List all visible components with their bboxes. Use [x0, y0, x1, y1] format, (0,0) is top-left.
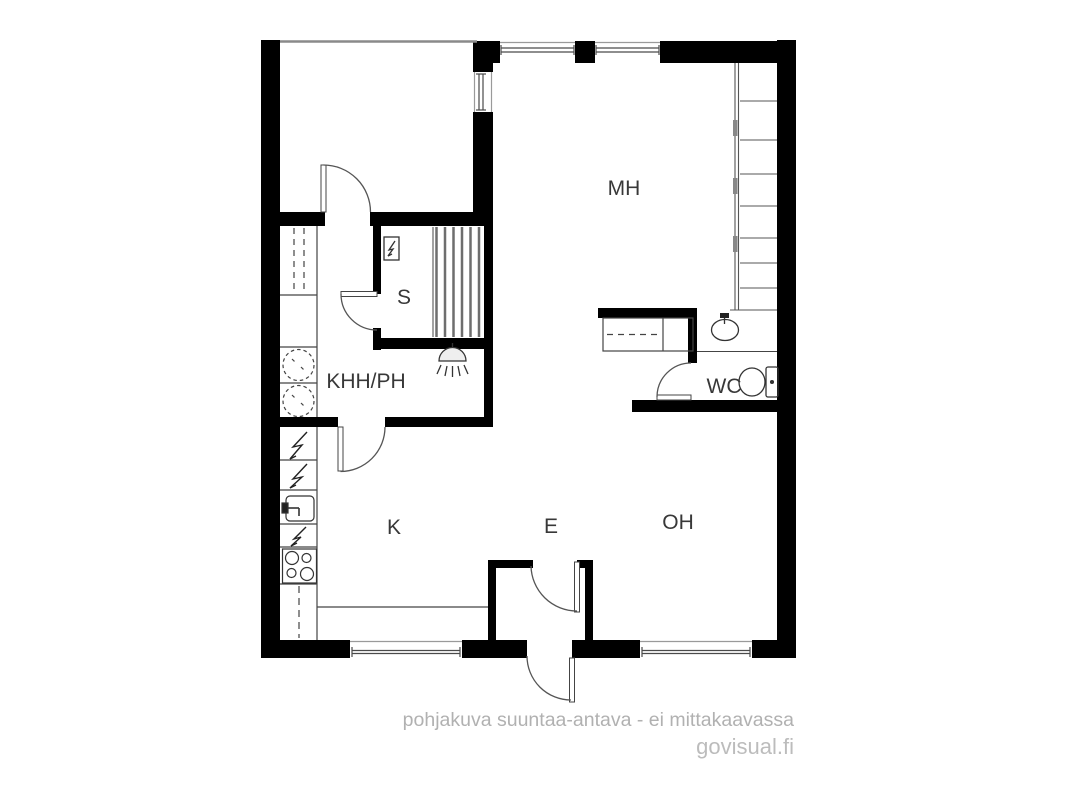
wardrobe-handle [733, 120, 738, 136]
dryer-icon [283, 386, 314, 417]
tall-cabinet [294, 228, 304, 293]
wash-basin-icon [712, 313, 739, 341]
wardrobe-handle [733, 236, 738, 252]
wardrobe-handle [733, 178, 738, 194]
terrace-door [321, 165, 371, 212]
room-label-mh: MH [608, 177, 641, 200]
room-label-wc: WC [707, 375, 742, 398]
door-swing-icon [341, 294, 377, 330]
electrical-appliance-icon [291, 527, 306, 546]
utility-cabinets [280, 226, 317, 417]
room-label-e: E [544, 515, 558, 538]
window-kitchen [350, 642, 462, 658]
disclaimer-text: pohjakuva suuntaa-antava - ei mittakaava… [403, 709, 794, 731]
floor-plan-page: MH S KHH/PH WC K E OH pohjakuva suuntaa-… [0, 0, 1067, 800]
door-swing-icon [527, 656, 571, 700]
floor-plan-drawing: MH S KHH/PH WC K E OH pohjakuva suuntaa-… [0, 0, 1067, 800]
hall-closet [603, 318, 693, 351]
sauna-benches [433, 227, 479, 337]
walls [261, 40, 796, 658]
brand-text: govisual.fi [696, 734, 794, 759]
sauna-door [341, 292, 377, 331]
room-label-s: S [397, 286, 411, 309]
sauna-fittings [384, 227, 479, 337]
room-label-khh-ph: KHH/PH [326, 370, 405, 393]
door-swing-icon [531, 566, 577, 611]
mh-wardrobe [730, 63, 777, 310]
washing-machine-icon [283, 350, 314, 381]
stove-icon [283, 549, 317, 583]
room-label-k: K [387, 516, 401, 539]
window-top-2 [595, 43, 660, 56]
sauna-heater-icon [384, 237, 399, 260]
door-swing-icon [657, 363, 691, 397]
room-labels: MH S KHH/PH WC K E OH [326, 177, 741, 539]
electrical-appliance-icon [290, 432, 307, 459]
kitchen-fittings [280, 427, 488, 640]
electrical-appliance-icon [290, 464, 307, 488]
footer: pohjakuva suuntaa-antava - ei mittakaava… [403, 709, 794, 759]
vestibule-inner-door [531, 562, 580, 612]
wc-door [657, 363, 691, 400]
window-top-1 [500, 43, 575, 56]
toilet-icon [739, 367, 778, 397]
front-door [527, 656, 575, 702]
utility-room-door [338, 427, 385, 472]
door-swing-icon [341, 427, 386, 472]
window-mh-side [475, 72, 492, 112]
door-swing-icon [324, 165, 371, 212]
room-label-oh: OH [662, 511, 694, 534]
kitchen-sink-icon [282, 496, 314, 521]
window-livingroom [640, 642, 752, 658]
